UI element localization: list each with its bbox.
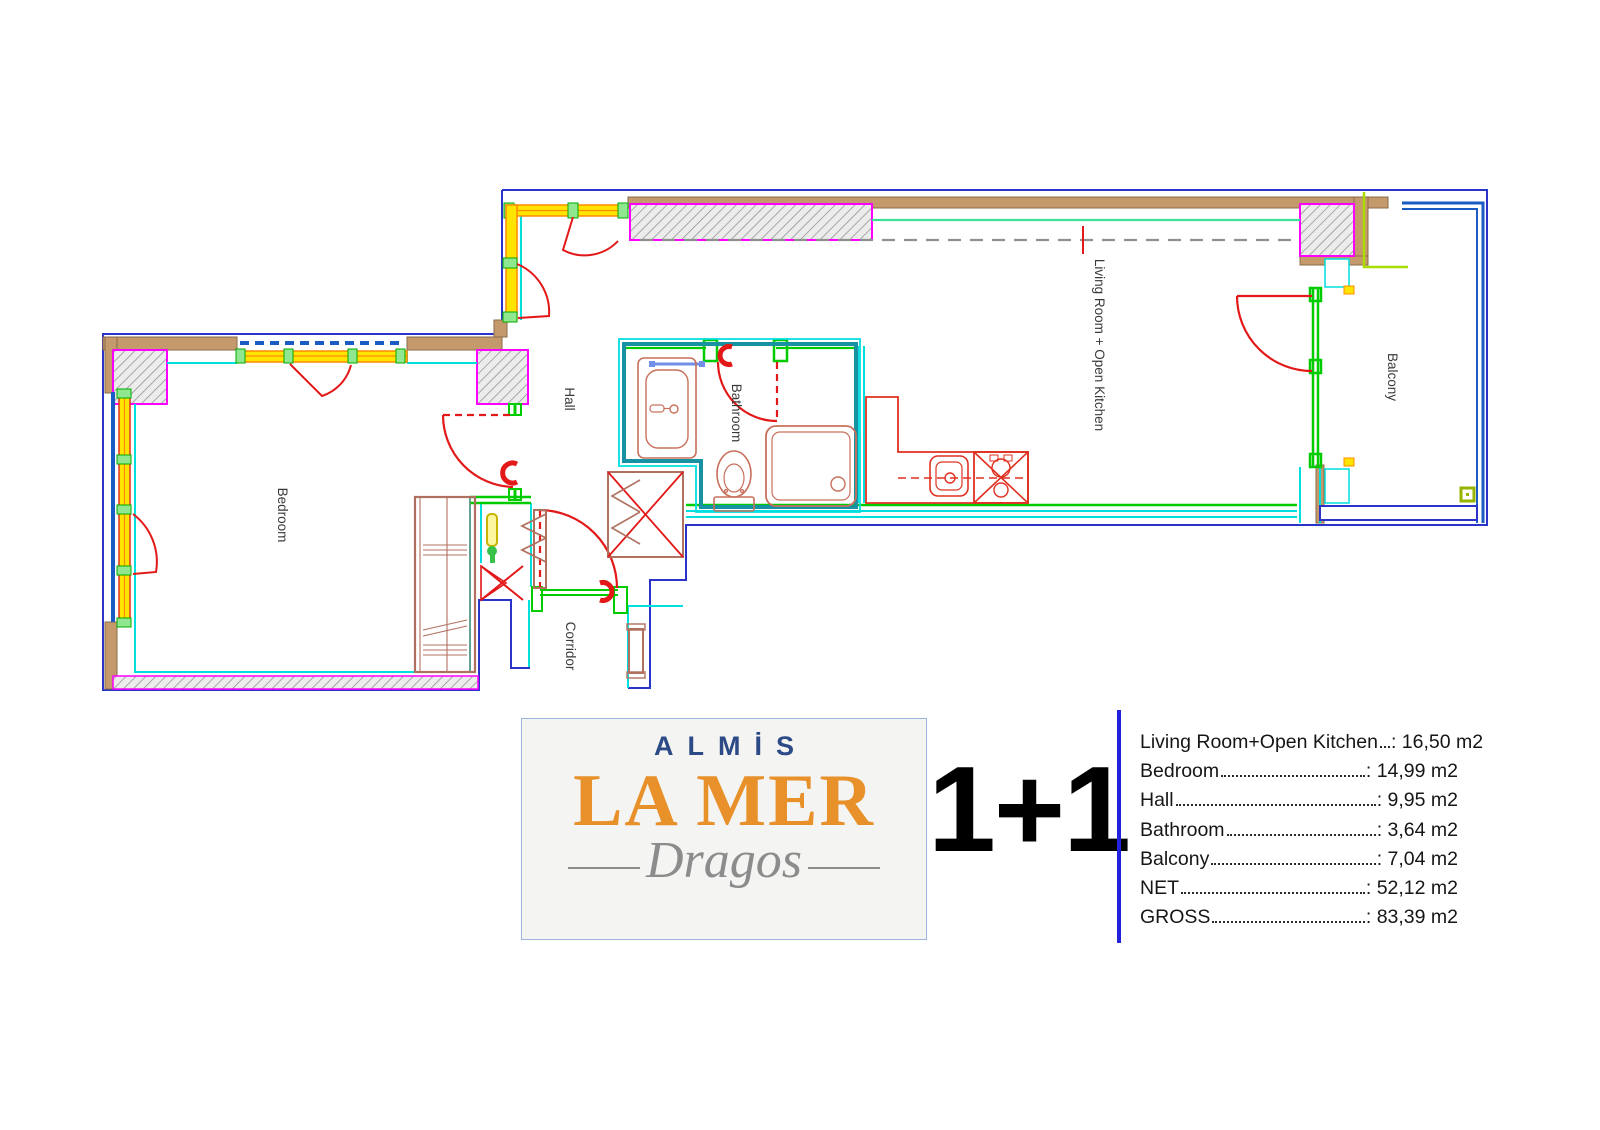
furniture [415,472,683,678]
bedroom-left-window [113,389,131,627]
dot-leader [1176,804,1376,806]
dot-leader [1212,921,1364,923]
balcony-drain-icon [1461,488,1474,501]
balcony-planter [1320,506,1477,520]
room-label-hall: Hall [562,387,577,410]
small-shaft-x [481,566,523,600]
hall-top-window [504,203,628,218]
kitchen [866,397,1028,503]
dot-leader [1181,892,1365,894]
room-label-balcony: Balcony [1385,353,1400,401]
area-value: : 9,95 m2 [1377,789,1458,812]
area-row: Hall: 9,95 m2 [1140,789,1458,818]
bedroom-window-swing [290,364,351,396]
logo-card: ALMİS LA MER Dragos [521,718,927,940]
plan-type-label: 1+1 [928,748,1112,870]
area-label: GROSS [1140,906,1210,929]
dot-leader [1380,746,1390,748]
area-row: GROSS: 83,39 m2 [1140,906,1458,935]
area-value: : 14,99 m2 [1366,760,1458,783]
green-wall-lines [470,288,1321,613]
area-value: : 83,39 m2 [1366,906,1458,929]
radiator-icon [627,624,645,678]
hall-window-swing [563,217,618,255]
kitchen-counter [866,397,1028,503]
windows [113,203,628,627]
shower-tray-icon [766,426,856,506]
brand-rule-right [808,867,880,869]
bedroom-left-window-swing [133,514,157,574]
brand-sub-row: Dragos [562,835,886,887]
wardrobe-icon [415,497,475,672]
area-row: Balcony: 7,04 m2 [1140,848,1458,877]
room-label-living-room: Living Room + Open Kitchen [1092,259,1107,431]
kitchen-sink-icon [930,456,968,496]
brand-name-sub: Dragos [646,835,802,887]
marker-bathroom-door [720,347,732,365]
sink-icon [638,358,696,458]
toilet-icon [714,451,754,511]
dot-leader [1227,834,1376,836]
room-label-bathroom: Bathroom [729,384,744,443]
entrance-door [540,510,617,588]
column-top-wall [630,204,872,240]
area-value: : 52,12 m2 [1366,877,1458,900]
area-row: NET: 52,12 m2 [1140,877,1458,906]
marker-entrance-door [600,583,612,601]
brand-name-top: ALMİS [640,731,808,762]
hatched-columns [113,204,1354,689]
area-label: Balcony [1140,848,1209,871]
room-label-corridor: Corridor [563,622,578,671]
column-balcony-corner [1300,204,1354,256]
column-bedroom-right [477,350,528,404]
area-label: Hall [1140,789,1174,812]
hall-left-window [503,205,517,322]
interior-cyan-lines [135,205,1349,688]
area-row: Living Room+Open Kitchen: 16,50 m2 [1140,731,1458,760]
room-labels: Bedroom Hall Bathroom Corridor Living Ro… [275,259,1400,671]
floor-plan-drawing: Bedroom Hall Bathroom Corridor Living Ro… [0,0,1600,1130]
outer-boundary [103,190,1487,690]
area-row: Bathroom: 3,64 m2 [1140,819,1458,848]
area-value: : 16,50 m2 [1391,731,1483,754]
area-label: Living Room+Open Kitchen [1140,731,1378,754]
boiler-icon [487,514,497,563]
area-label: Bedroom [1140,760,1219,783]
area-label: Bathroom [1140,819,1225,842]
area-table: Living Room+Open Kitchen: 16,50 m2Bedroo… [1140,731,1458,935]
bedroom-bottom-wall [113,676,478,689]
marker-bedroom-door [503,463,517,483]
floorplan-canvas: Bedroom Hall Bathroom Corridor Living Ro… [0,0,1600,1130]
balcony-door-sills [1344,286,1354,466]
dot-leader [1221,775,1365,777]
brand-name-main: LA MER [573,764,875,839]
balcony-door [1237,296,1312,371]
table-divider-rule [1117,710,1121,943]
area-value: : 3,64 m2 [1377,819,1458,842]
brand-rule-left [568,867,640,869]
entrance-door-leaf [522,510,546,588]
bathroom-door [718,362,777,421]
balcony-rail [1402,203,1483,523]
dot-leader [1211,863,1375,865]
area-label: NET [1140,877,1179,900]
shaft-box [608,472,683,557]
wall-bands [103,197,1388,689]
door-swing-markers [503,347,732,601]
bedroom-top-window [236,343,407,363]
room-label-bedroom: Bedroom [275,488,290,543]
area-row: Bedroom: 14,99 m2 [1140,760,1458,789]
doors [133,217,1312,588]
area-value: : 7,04 m2 [1377,848,1458,871]
